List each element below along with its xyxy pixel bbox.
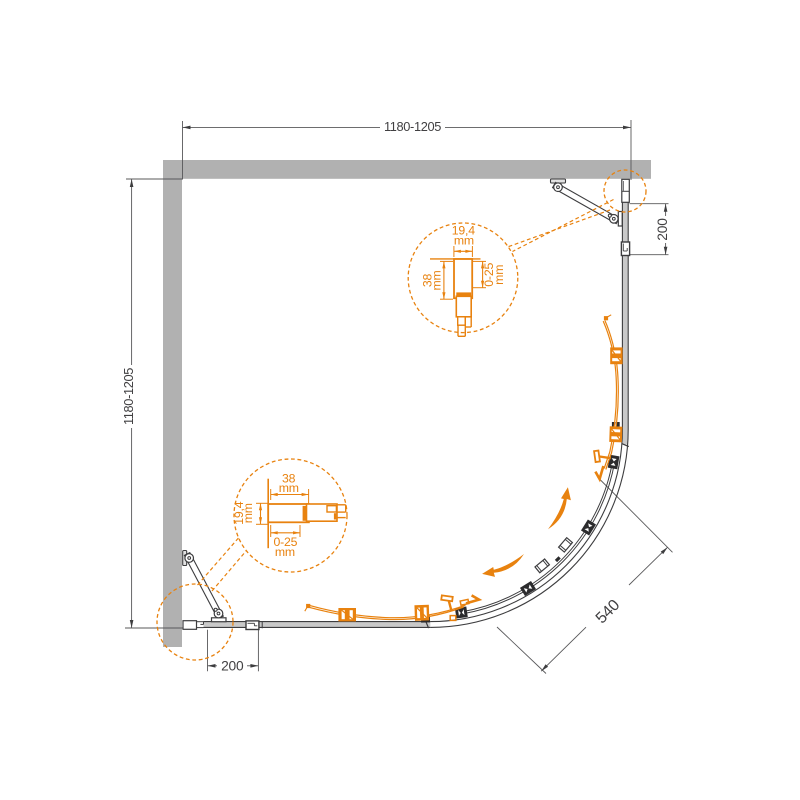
- svg-text:mm: mm: [454, 233, 474, 247]
- svg-text:200: 200: [655, 218, 670, 241]
- svg-text:1180-1205: 1180-1205: [384, 119, 441, 134]
- svg-text:200: 200: [221, 659, 244, 674]
- svg-text:1180-1205: 1180-1205: [121, 368, 136, 425]
- svg-text:mm: mm: [492, 265, 506, 285]
- svg-text:mm: mm: [241, 503, 255, 523]
- svg-text:mm: mm: [279, 481, 299, 495]
- svg-text:mm: mm: [429, 270, 443, 290]
- svg-text:mm: mm: [275, 545, 295, 559]
